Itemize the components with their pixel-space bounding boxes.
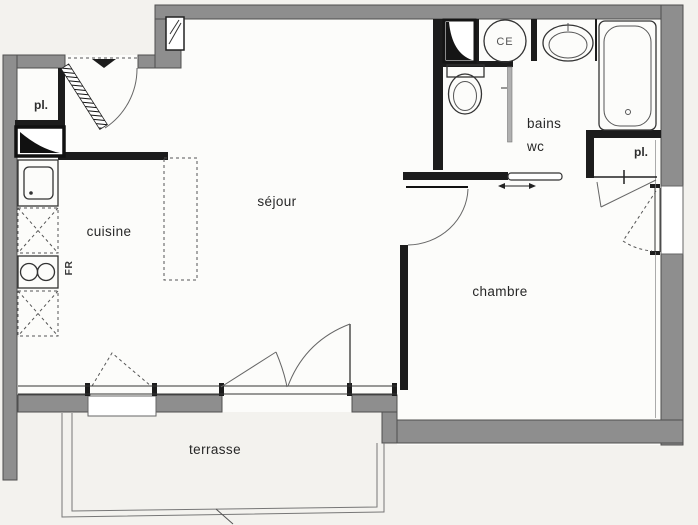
label-closet-entry: pl. (34, 98, 48, 112)
wall-south-sejour-2 (155, 395, 222, 412)
entry-shaft (16, 127, 64, 156)
partition-chambre-west (400, 245, 408, 390)
wall-east-lower (661, 252, 683, 445)
sink-drain-icon (29, 191, 33, 195)
floor-plan-page: FR CE (0, 0, 698, 525)
partition-bath-west (433, 19, 443, 170)
label-bains: bains (527, 116, 561, 131)
wall-step-south (382, 412, 397, 443)
label-terrasse: terrasse (189, 442, 241, 457)
partition-sliding-wall (403, 172, 508, 180)
label-cuisine: cuisine (87, 224, 132, 239)
terrace-window-sill (88, 396, 156, 416)
wc-screen (508, 67, 513, 142)
partition-ce-basin (531, 19, 537, 61)
partition-closet2-west (586, 130, 594, 178)
duct-box-north (166, 17, 184, 50)
wall-south-chambre (397, 420, 683, 443)
label-wc: wc (526, 139, 544, 154)
partition-entry-closet (58, 68, 65, 125)
label-sejour: séjour (257, 194, 296, 209)
glazing-cap (650, 184, 660, 188)
sliding-door-panel (508, 173, 562, 180)
wall-south-sejour-1 (18, 395, 90, 412)
wall-west (3, 55, 17, 480)
wall-entry-stub (138, 55, 155, 68)
label-chambre: chambre (472, 284, 527, 299)
chambre-window-sill (661, 186, 683, 254)
wall-south-sejour-3 (352, 395, 397, 412)
label-closet-chambre: pl. (634, 145, 648, 159)
partition-tub-bottom (586, 130, 661, 138)
wall-east-upper (661, 5, 683, 188)
partition-kitchen-bar (58, 152, 168, 160)
water-heater-label: CE (496, 36, 513, 48)
floor-plan-svg: FR CE (0, 0, 698, 525)
partition-basin-tub (595, 19, 597, 61)
wall-north (155, 5, 683, 19)
fridge-label: FR (63, 261, 75, 276)
